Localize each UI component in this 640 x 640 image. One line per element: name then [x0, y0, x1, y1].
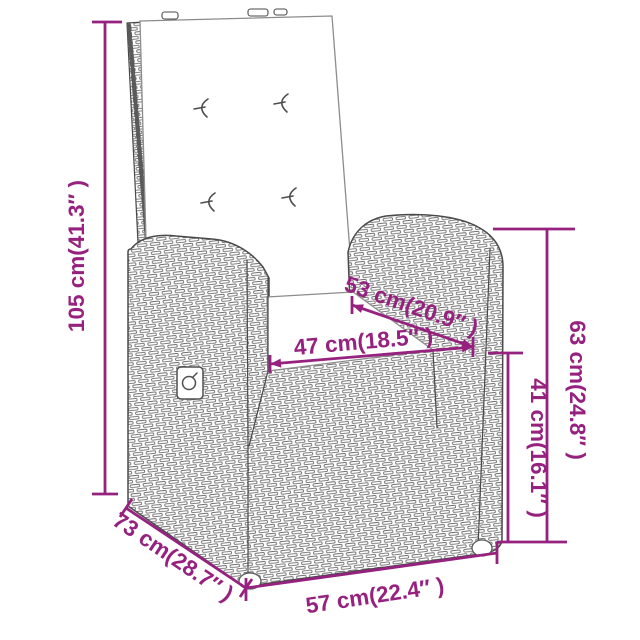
dimension-overall-height: [92, 22, 122, 494]
label-overall-width: 57 cm(22.4″ ): [304, 573, 446, 618]
chair-illustration: [127, 9, 503, 589]
chair-dimension-diagram: 105 cm(41.3″ ) 53 cm(20.9″ ) 47 cm(18.5″…: [0, 0, 640, 640]
recline-knob: [177, 367, 203, 399]
label-seat-height: 41 cm(16.1″ ): [526, 378, 551, 518]
label-armrest-height: 63 cm(24.8″ ): [565, 320, 590, 460]
diagram-canvas: 105 cm(41.3″ ) 53 cm(20.9″ ) 47 cm(18.5″…: [0, 0, 640, 640]
cushion-tie-tab: [274, 9, 287, 15]
label-overall-height: 105 cm(41.3″ ): [64, 180, 89, 332]
cushion-tie-tab: [248, 9, 268, 16]
cushion-tie-tab: [162, 12, 178, 19]
